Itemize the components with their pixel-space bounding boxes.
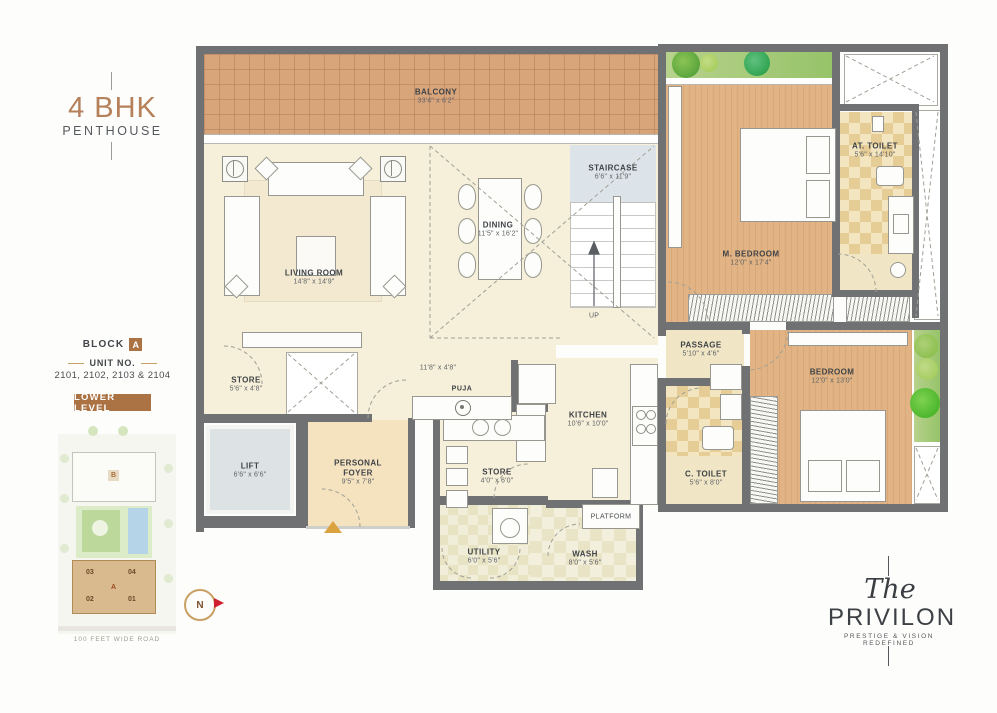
basin-niche [710, 364, 742, 390]
burner-icon [646, 424, 656, 434]
pillow [808, 460, 842, 492]
room-name: C. TOILET [685, 470, 727, 479]
wall [196, 46, 204, 532]
unit-row: UNIT NO. [40, 358, 185, 368]
compass-arrow-icon [214, 598, 224, 608]
divider-tick [111, 72, 112, 90]
tree [672, 50, 700, 78]
room-label-bedroom: BEDROOM 12'0" x 13'0" [810, 368, 855, 385]
wall [832, 104, 918, 111]
room-dims: 10'6" x 10'0" [568, 421, 609, 428]
block-a-letter: A [108, 582, 119, 593]
kitchen-cabinet [518, 364, 556, 404]
room-dims: 5'6" x 8'0" [685, 480, 727, 487]
room-name: BALCONY [415, 88, 457, 97]
site-tree [118, 426, 128, 436]
room-label-store1: STORE 5'6" x 4'8" [230, 376, 263, 393]
room-name: KITCHEN [568, 411, 609, 420]
wall [658, 504, 948, 512]
shelf [446, 490, 468, 508]
wall [511, 360, 518, 406]
burner-icon [646, 410, 656, 420]
page-title: 4 BHK [40, 92, 185, 125]
wall [786, 322, 948, 330]
pillow [846, 460, 880, 492]
wall [742, 366, 750, 512]
wall [433, 581, 643, 590]
logo-name: PRIVILON [828, 604, 950, 632]
room-name: M. BEDROOM [723, 250, 780, 259]
room-dims: 9'5" x 7'8" [327, 479, 389, 486]
wall [664, 322, 750, 330]
unit-02: 02 [86, 596, 94, 603]
dining-chair [458, 184, 476, 210]
room-name: AT. TOILET [852, 142, 898, 151]
void-terrace [844, 54, 938, 106]
site-tree [164, 519, 173, 528]
site-tree [60, 494, 69, 503]
room-label-attoilet: AT. TOILET 5'6" x 14'10" [852, 142, 898, 159]
wall [196, 414, 306, 423]
compass-n: N [196, 600, 203, 611]
wall [196, 46, 666, 54]
dash-left [68, 363, 84, 364]
cylinder-icon [472, 419, 489, 436]
threshold-line [306, 526, 410, 529]
puja-label: PUJA [452, 386, 473, 393]
site-road-band [58, 626, 176, 631]
basin-icon [893, 214, 909, 234]
wall [658, 44, 666, 336]
room-label-lift: LIFT 6'6" x 6'6" [234, 462, 267, 479]
tree [914, 334, 938, 358]
mbedroom-wardrobe [688, 294, 834, 322]
tree [744, 50, 770, 76]
unit-01: 01 [128, 596, 136, 603]
room-dims: 12'0" x 13'0" [810, 378, 855, 385]
logo-tick [888, 556, 889, 576]
room-label-foyer: PERSONAL FOYER 9'5" x 7'8" [327, 458, 389, 485]
compass: N [184, 589, 216, 621]
wall [940, 44, 948, 512]
room-name: STORE [481, 468, 514, 477]
room-dims: 14'8" x 14'9" [285, 279, 343, 286]
shelf [446, 446, 468, 464]
unit-03: 03 [86, 569, 94, 576]
tree [700, 54, 718, 72]
room-dims: 6'0" x 5'6" [467, 558, 500, 565]
stair-railing [613, 196, 621, 308]
window-band [204, 134, 658, 144]
room-dims: 12'0" x 17'4" [723, 260, 780, 267]
mbedroom-window-sill [666, 78, 834, 85]
room-label-dining: DINING 11'5" x 16'2" [478, 221, 518, 238]
site-tree [60, 544, 69, 553]
site-tree [164, 464, 173, 473]
tree [916, 358, 938, 380]
room-label-mbedroom: M. BEDROOM 12'0" x 17'4" [723, 250, 780, 267]
block-label: BLOCK [83, 339, 125, 350]
key-plan: B 03 04 A 02 01 [58, 424, 176, 634]
shelf [446, 468, 468, 486]
dining-chair [458, 252, 476, 278]
room-name: WASH [569, 550, 602, 559]
room-dims: 11'5" x 16'2" [478, 231, 518, 238]
room-label-balcony: BALCONY 33'4" x 6'2" [415, 88, 457, 105]
room-name: LIFT [234, 462, 267, 471]
up-label: UP [589, 313, 599, 320]
shower-icon [872, 116, 884, 132]
sink-icon [592, 468, 618, 498]
room-name: LIVING ROOM [285, 269, 343, 278]
room-dims: 33'4" x 6'2" [415, 98, 457, 105]
room-label-passage: PASSAGE 5'10" x 4'6" [680, 341, 721, 358]
block-badge: A [129, 338, 142, 351]
room-dims: 6'6" x 11'9" [588, 174, 637, 181]
wall [196, 516, 306, 528]
room-name: DINING [478, 221, 518, 230]
divider-tick [111, 142, 112, 160]
room-dims: 4'0" x 6'0" [481, 478, 514, 485]
room-name: UTILITY [467, 548, 500, 557]
planter-motif-icon [222, 156, 248, 182]
logo-tick [888, 646, 889, 666]
room-label-staircase: STAIRCASE 6'6" x 11'9" [588, 164, 637, 181]
wall [306, 414, 372, 422]
room-dims: 5'6" x 4'8" [230, 386, 263, 393]
puja-icon [455, 400, 471, 416]
road-label: 100 FEET WIDE ROAD [58, 636, 176, 643]
logo-the: The [862, 574, 918, 605]
dining-chair [458, 218, 476, 244]
platform-label: PLATFORM [591, 514, 632, 521]
basin-icon [720, 394, 742, 420]
dress-wardrobe [846, 294, 910, 322]
dining-chair [524, 218, 542, 244]
wc-icon [702, 426, 734, 450]
dining-chair [524, 252, 542, 278]
room-name: STORE [230, 376, 263, 385]
washing-machine-drum [500, 518, 520, 538]
corridor-dims: 11'8" x 4'8" [420, 365, 456, 372]
wc-icon [876, 166, 904, 186]
room-label-store2: STORE 4'0" x 6'0" [481, 468, 514, 485]
entry-arrow-icon [324, 521, 342, 533]
unit-04: 04 [128, 569, 136, 576]
burner-icon [636, 410, 646, 420]
room-label-ctoilet: C. TOILET 5'6" x 8'0" [685, 470, 727, 487]
room-label-wash: WASH 8'0" x 5'6" [569, 550, 602, 567]
planter-motif-icon [380, 156, 406, 182]
block-row: BLOCK A [40, 338, 185, 351]
room-dims: 5'10" x 4'6" [680, 351, 721, 358]
bedroom-dresser [788, 332, 908, 346]
room-name: STAIRCASE [588, 164, 637, 173]
wall [832, 290, 918, 297]
void-corner [914, 446, 942, 504]
pillow [806, 136, 830, 174]
stool-icon [890, 262, 906, 278]
room-label-kitchen: KITCHEN 10'6" x 10'0" [568, 411, 609, 428]
unit-numbers: 2101, 2102, 2103 & 2104 [40, 370, 185, 381]
floorplan-canvas: 4 BHK PENTHOUSE BLOCK A UNIT NO. 2101, 2… [0, 0, 997, 713]
site-tree [164, 574, 173, 583]
unit-label: UNIT NO. [90, 358, 136, 368]
room-dims: 6'6" x 6'6" [234, 472, 267, 479]
burner-icon [636, 424, 646, 434]
shaft-box [286, 352, 358, 416]
room-label-living: LIVING ROOM 14'8" x 14'9" [285, 269, 343, 286]
site-lawn-circle [92, 520, 108, 536]
bedroom-wardrobe [750, 396, 778, 504]
wall [408, 418, 415, 528]
site-tree [88, 426, 98, 436]
level-badge: LOWER LEVEL [74, 394, 151, 411]
tv-console [242, 332, 362, 348]
room-dims: 8'0" x 5'6" [569, 560, 602, 567]
mbedroom-dresser [668, 86, 682, 248]
pillow [806, 180, 830, 218]
dash-right [141, 363, 157, 364]
logo-tagline: PRESTIGE & VISION REDEFINED [824, 633, 954, 647]
page-subtitle: PENTHOUSE [40, 124, 185, 138]
site-pool [128, 508, 148, 554]
site-tree [60, 454, 69, 463]
tree [910, 388, 940, 418]
dining-chair [524, 184, 542, 210]
block-b-letter: B [108, 470, 119, 481]
room-name: PERSONAL FOYER [327, 458, 389, 477]
room-name: BEDROOM [810, 368, 855, 377]
wall [658, 44, 948, 52]
wall [742, 322, 750, 334]
room-label-utility: UTILITY 6'0" x 5'6" [467, 548, 500, 565]
room-dims: 5'6" x 14'10" [852, 152, 898, 159]
wall [296, 414, 308, 528]
room-name: PASSAGE [680, 341, 721, 350]
cylinder-icon [494, 419, 511, 436]
wall [658, 378, 666, 512]
